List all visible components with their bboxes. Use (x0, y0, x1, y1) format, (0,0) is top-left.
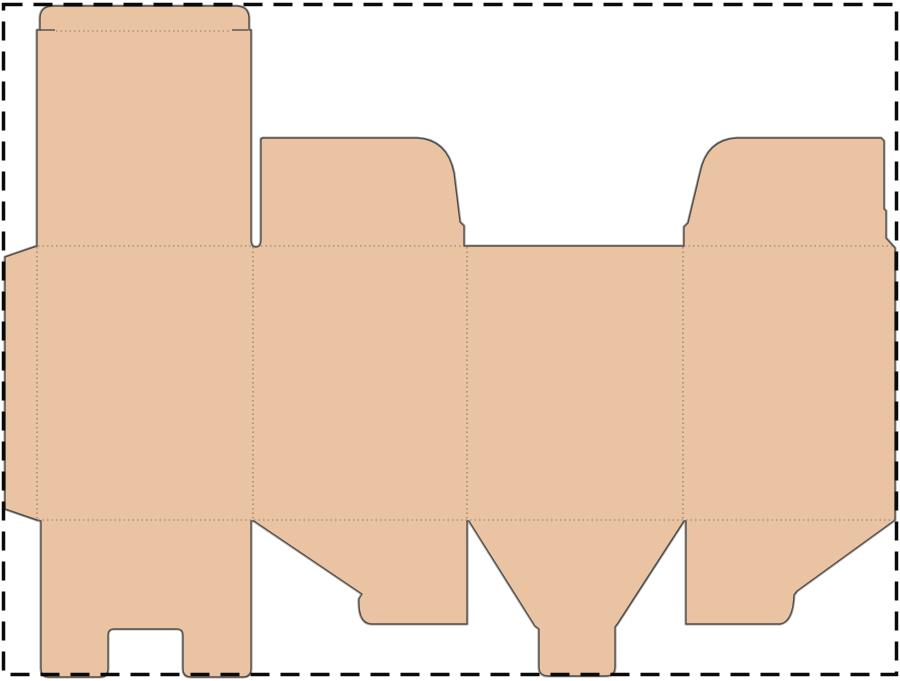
dieline-canvas (0, 0, 900, 681)
dieline-drawing (0, 0, 900, 681)
